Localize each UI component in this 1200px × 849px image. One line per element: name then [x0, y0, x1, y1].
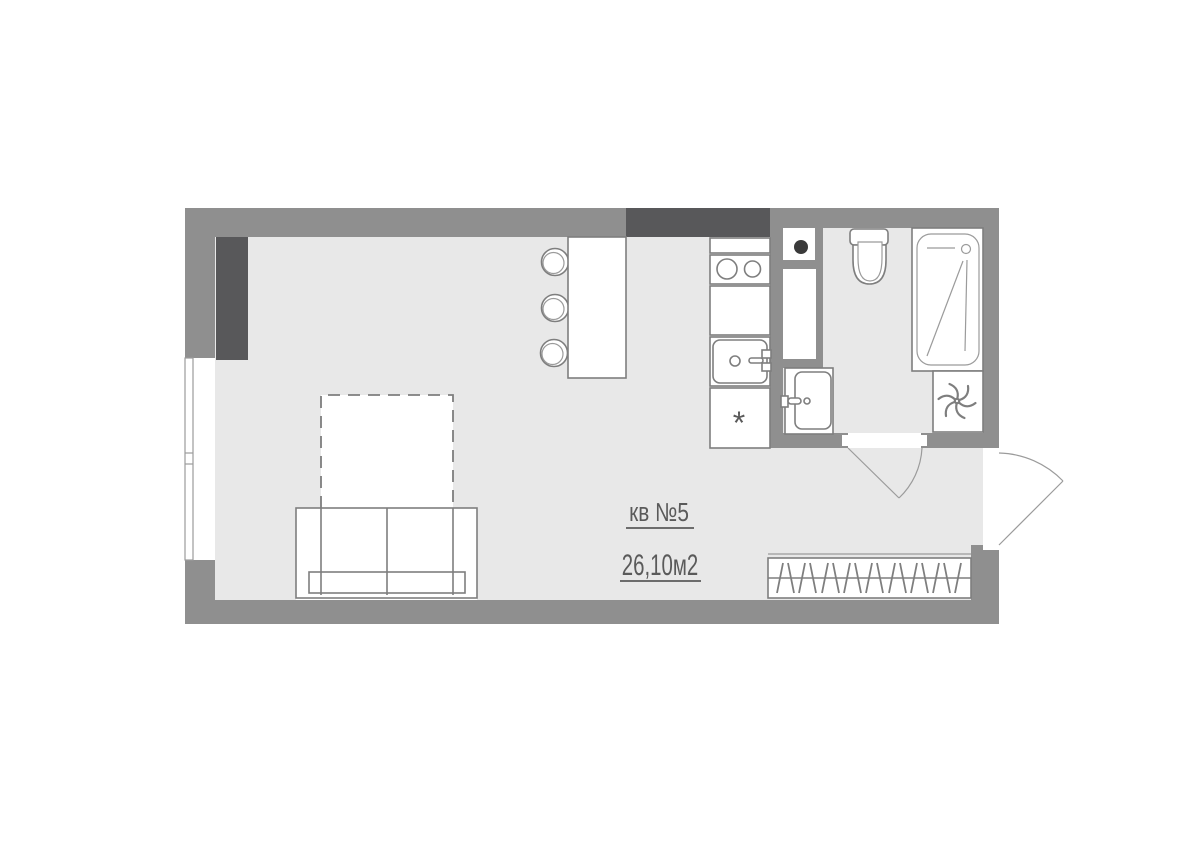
bar-counter: [568, 237, 626, 378]
right-wall-upper: [983, 208, 999, 453]
door-jamb: [983, 545, 999, 550]
shaft-recess: [783, 269, 816, 359]
entrance-door: [983, 448, 1063, 550]
door-jamb: [842, 435, 848, 446]
door-leaf: [999, 481, 1063, 545]
cooktop: [710, 255, 770, 284]
pipe-riser-dot: [794, 240, 808, 254]
kitchen-counter-segment: [710, 238, 770, 253]
door-jamb: [983, 448, 999, 453]
refrigerator: *: [710, 388, 770, 448]
right-wall-lower: [971, 545, 999, 600]
door-swing-arc: [999, 453, 1063, 481]
bathroom-south-wall-left: [770, 433, 848, 448]
kitchen-counter-segment: [710, 286, 770, 335]
fold-out-bed-fill: [321, 395, 453, 508]
bathroom-south-wall-right: [921, 433, 999, 448]
area-label: 26,10м2: [622, 549, 698, 582]
apartment-number-label: кв №5: [629, 498, 689, 527]
floorplan-page: *: [0, 0, 1200, 849]
coat-rack: [768, 554, 971, 598]
bar-stool: [542, 249, 569, 276]
bottom-wall: [185, 600, 999, 624]
structural-column: [216, 237, 248, 360]
bar-stool: [542, 295, 569, 322]
kitchen-block: *: [710, 238, 771, 448]
toilet-bowl-inner: [858, 242, 882, 281]
door-jamb: [921, 435, 927, 446]
toilet: [850, 229, 888, 284]
washing-machine: [933, 371, 983, 432]
kitchen-sink: [710, 337, 771, 386]
sofa-bed: [296, 395, 477, 600]
bathroom-sink: [781, 368, 833, 434]
utility-shaft: [783, 228, 816, 359]
bathtub: [912, 228, 983, 371]
window-frame: [185, 358, 193, 560]
bar-area: [541, 237, 627, 378]
bar-stool: [541, 340, 568, 367]
top-wall: [185, 208, 626, 237]
window-sill: [193, 358, 215, 560]
left-wall-upper: [185, 208, 215, 358]
fridge-asterisk: *: [733, 405, 745, 441]
window: [185, 358, 215, 560]
floorplan-drawing: *: [0, 0, 1200, 849]
top-wall-dark-segment: [626, 208, 770, 237]
